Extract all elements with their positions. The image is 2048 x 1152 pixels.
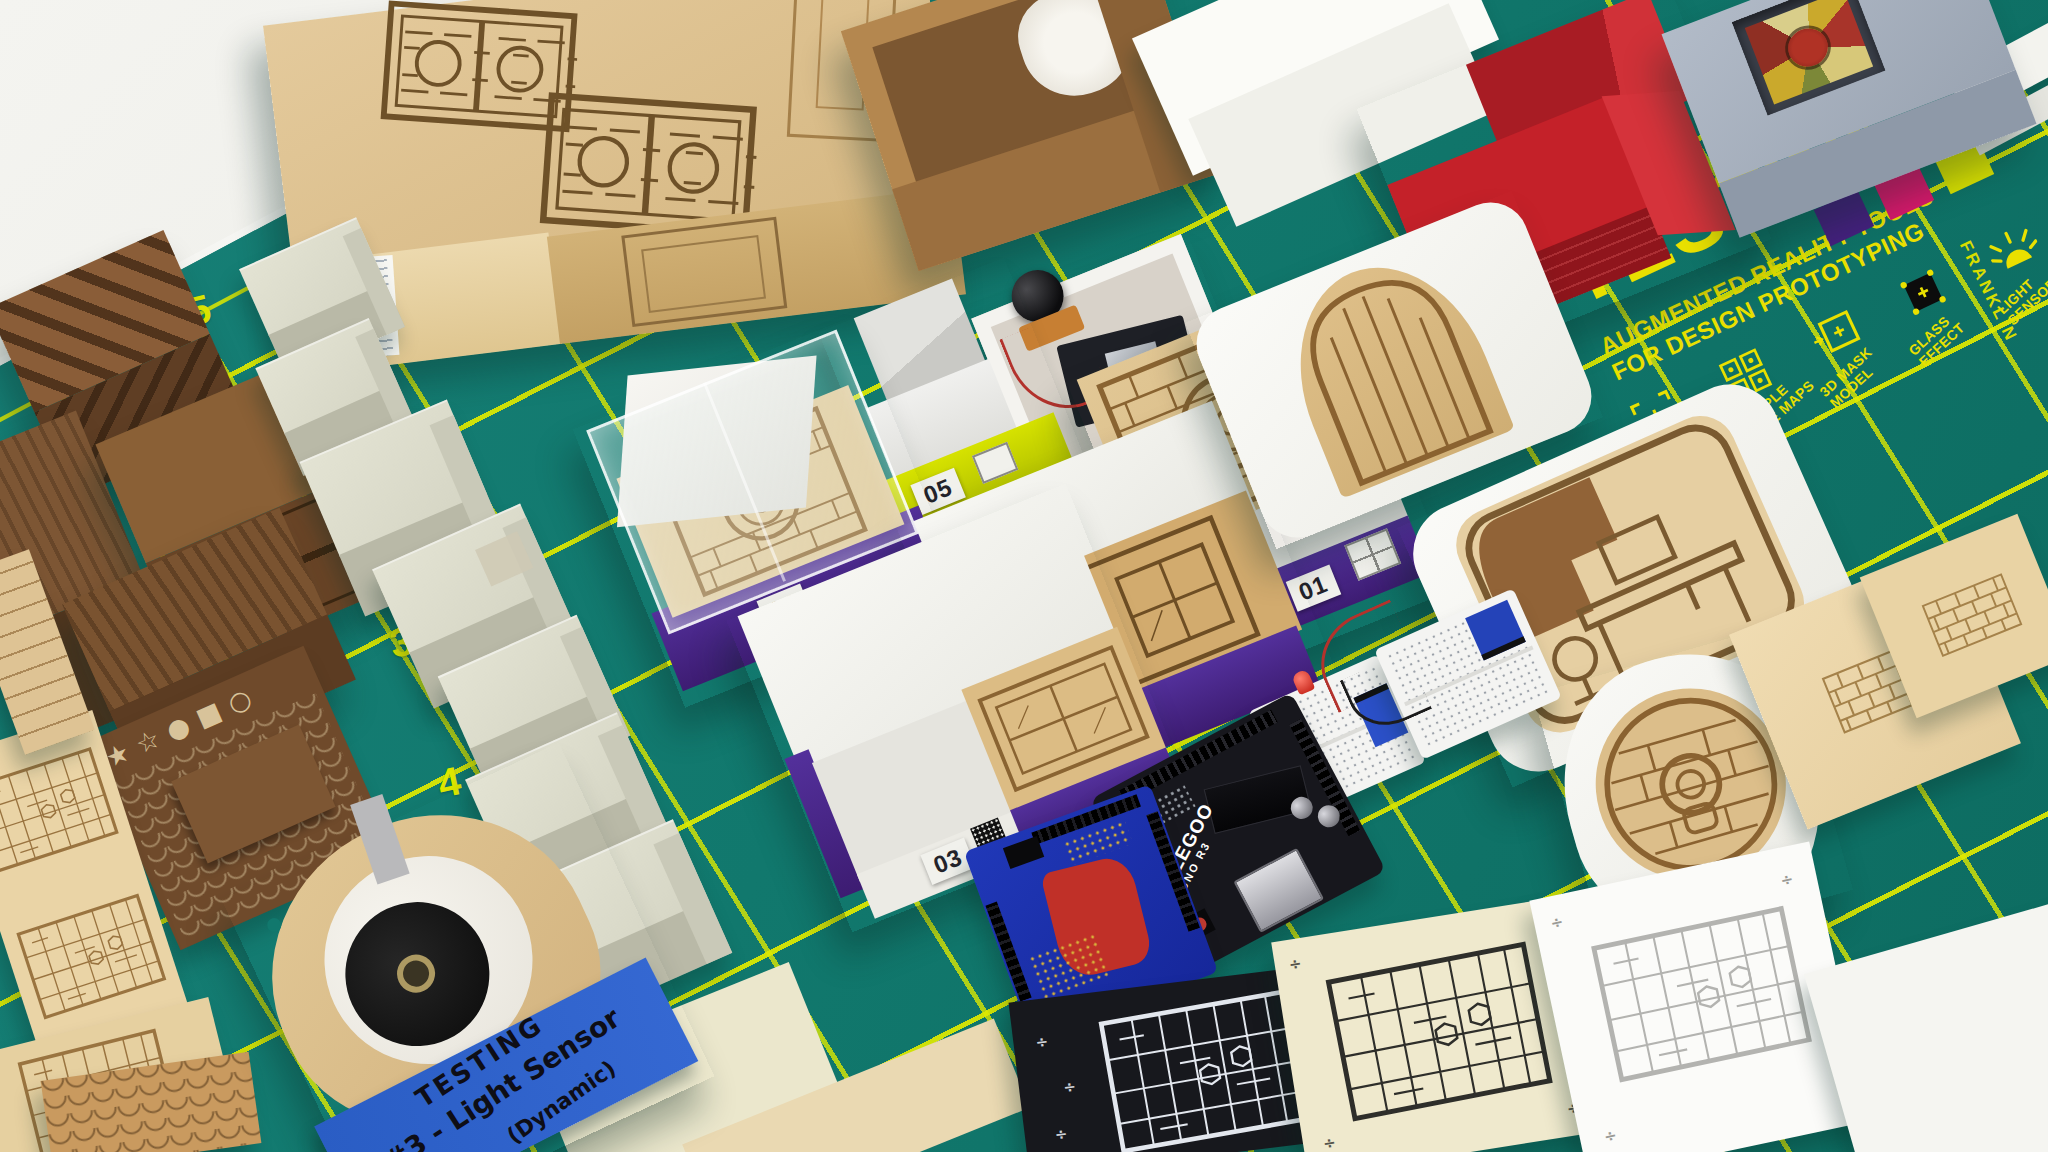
registration-mark — [1062, 1079, 1076, 1095]
registration-mark — [1054, 1127, 1068, 1143]
registration-mark — [1035, 1034, 1049, 1050]
registration-mark — [1549, 914, 1564, 931]
floor-plan-print-faint — [1574, 889, 1830, 1098]
header-block — [1003, 836, 1044, 869]
registration-mark — [1779, 872, 1794, 889]
brick-patch-etch — [1918, 569, 2027, 661]
registration-mark — [1322, 1135, 1337, 1152]
gold-pads — [1027, 933, 1109, 1000]
floor-plan-print — [1307, 925, 1571, 1139]
registration-mark — [1288, 956, 1303, 973]
registration-mark — [1603, 1128, 1618, 1145]
workbench-photo: 6 5 3 4 5 6 TESTING AUGMENTED REALITY TO… — [0, 0, 2048, 1152]
